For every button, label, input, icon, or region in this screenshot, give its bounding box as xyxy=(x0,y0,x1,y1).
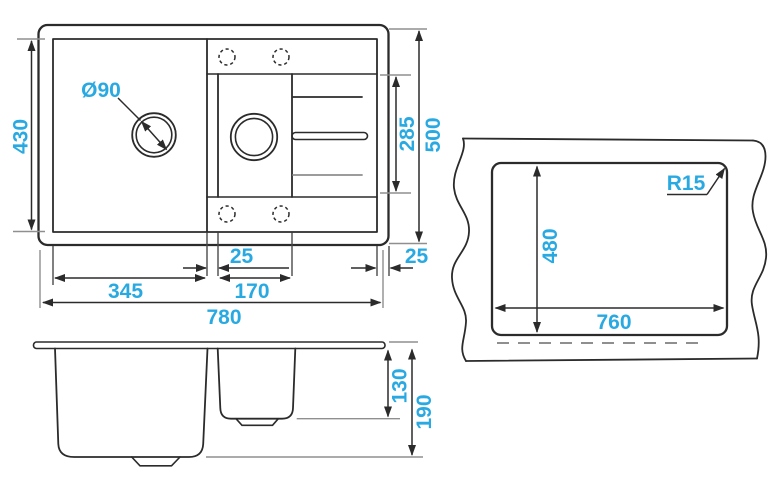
dim-label-right-section-height: 285 xyxy=(396,116,419,151)
cutout-view: R15 480 760 xyxy=(452,139,766,362)
dim-label-overall-width: 780 xyxy=(206,306,241,329)
main-bowl-drain xyxy=(118,98,176,157)
dim-label-drain-diameter: Ø90 xyxy=(81,79,121,102)
small-bowl-drain xyxy=(231,114,277,160)
dim-label-cutout-height: 480 xyxy=(539,228,562,263)
small-bowl-profile xyxy=(218,349,296,419)
countertop-bottom-edge xyxy=(466,359,757,362)
dim-label-cutout-width: 760 xyxy=(596,311,631,334)
dim-label-corner-radius: R15 xyxy=(667,172,706,195)
tap-hole-icon xyxy=(219,49,235,65)
dim-label-basin-height: 430 xyxy=(10,119,33,154)
dim-label-small-bowl-width: 170 xyxy=(234,280,269,303)
break-wave-left xyxy=(452,139,469,362)
side-view-dimensions: 130 190 xyxy=(206,342,436,457)
dim-label-overall-depth: 190 xyxy=(413,394,436,429)
sink-outline xyxy=(39,25,389,245)
cutout-dimensions: R15 480 760 xyxy=(496,167,725,335)
dim-label-overall-height: 500 xyxy=(422,117,445,152)
large-bowl-profile xyxy=(55,349,208,458)
drain-inner-circle xyxy=(235,118,272,155)
large-bowl-drain-fitting xyxy=(132,457,180,466)
tap-holes xyxy=(219,49,289,222)
dim-label-small-bowl-depth: 130 xyxy=(389,368,412,403)
diameter-arrow xyxy=(142,122,167,150)
break-wave-right xyxy=(752,141,767,359)
drainboard-grooves xyxy=(292,97,368,175)
tap-hole-icon xyxy=(219,206,235,222)
dim-label-right-gap: 25 xyxy=(405,245,429,268)
sink-technical-drawing: Ø90 430 285 500 25 345 170 25 780 130 1 xyxy=(0,0,775,486)
extension-lines xyxy=(13,29,427,308)
small-bowl-drain-fitting xyxy=(236,419,278,426)
top-view: Ø90 430 285 500 25 345 170 25 780 xyxy=(10,25,446,329)
sink-dimension-diagram: Ø90 430 285 500 25 345 170 25 780 130 1 xyxy=(0,0,775,486)
sink-rim-profile xyxy=(34,342,386,349)
sink-inner-rim xyxy=(53,39,377,232)
sink-outer-edge xyxy=(39,25,389,245)
tap-hole-icon xyxy=(273,206,289,222)
tap-hole-icon xyxy=(273,49,289,65)
side-view: 130 190 xyxy=(34,342,437,466)
radius-leader-arrow xyxy=(707,169,725,195)
dim-label-left-bowl-width: 345 xyxy=(108,280,143,303)
dim-label-left-gap: 25 xyxy=(230,245,254,268)
groove-slot xyxy=(292,133,368,140)
drain-outer-circle xyxy=(231,114,277,160)
diameter-leader-line xyxy=(118,98,141,121)
countertop-top-edge xyxy=(463,139,753,141)
